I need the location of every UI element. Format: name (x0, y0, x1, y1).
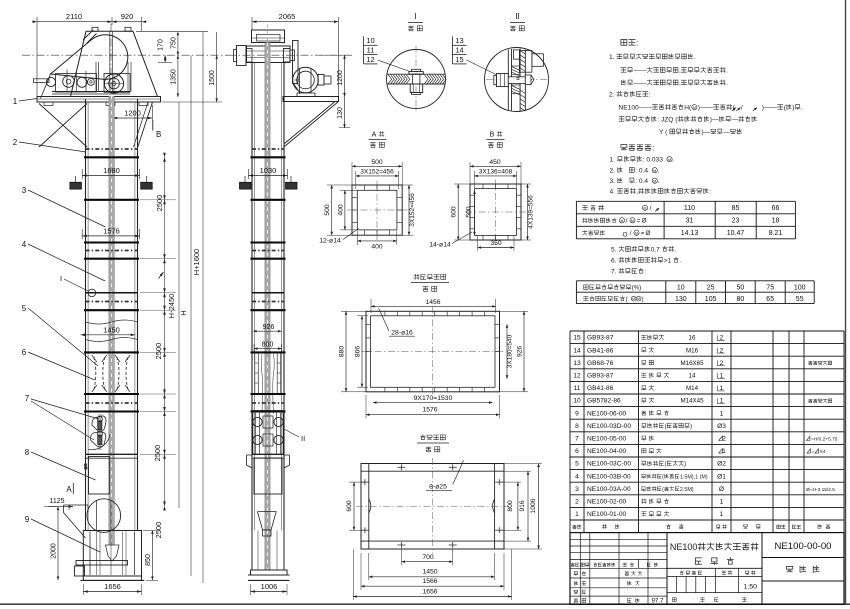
svg-text:8: 8 (25, 448, 30, 457)
svg-text:H(: H( (684, 105, 692, 112)
svg-text:>1: >1 (664, 258, 672, 265)
svg-text:1: 1 (720, 499, 724, 506)
svg-text:O: O (623, 231, 628, 238)
svg-text:2110: 2110 (66, 12, 82, 21)
svg-text:400: 400 (337, 204, 344, 216)
svg-text:NE100-05-00: NE100-05-00 (587, 436, 627, 443)
svg-text:3X152=456: 3X152=456 (409, 193, 416, 227)
svg-text:1576: 1576 (103, 227, 120, 236)
svg-text:8.21: 8.21 (769, 230, 783, 237)
svg-text:NE100——: NE100—— (619, 105, 653, 112)
svg-text:/: / (741, 105, 743, 112)
svg-text:1:50: 1:50 (744, 584, 757, 591)
svg-text:85: 85 (732, 205, 740, 212)
svg-text:.: . (726, 68, 728, 75)
svg-text:1200: 1200 (124, 109, 141, 118)
svg-text:1006: 1006 (530, 498, 537, 513)
svg-text:10: 10 (366, 36, 374, 45)
svg-text:9X170=1530: 9X170=1530 (414, 395, 453, 402)
svg-text:5: 5 (22, 304, 27, 313)
svg-text:A: A (66, 485, 72, 494)
svg-text:=: = (641, 231, 645, 237)
svg-text:GB68-76: GB68-76 (587, 360, 614, 367)
svg-text:3: 3 (22, 186, 27, 195)
svg-text:H+1600: H+1600 (192, 249, 201, 275)
svg-text:M: M (653, 169, 656, 173)
svg-text:Ø1: Ø1 (717, 473, 726, 480)
svg-text:—: — (732, 117, 739, 124)
svg-text:14: 14 (573, 347, 581, 354)
svg-text:11: 11 (574, 385, 581, 392)
svg-text:): ) (641, 296, 643, 303)
svg-text:X4: X4 (820, 449, 826, 455)
svg-text:(: ( (662, 487, 664, 493)
svg-text:130: 130 (337, 107, 344, 119)
svg-text:28-ø16: 28-ø16 (391, 330, 413, 337)
svg-text:M16: M16 (686, 347, 699, 354)
svg-text:170: 170 (158, 39, 165, 51)
svg-text:800: 800 (507, 500, 514, 512)
svg-text:25: 25 (707, 285, 715, 292)
svg-text:(%): (%) (632, 285, 642, 292)
svg-text:9: 9 (575, 410, 579, 417)
svg-text:450: 450 (489, 159, 501, 166)
svg-text:16: 16 (689, 335, 696, 342)
svg-text:.: . (694, 54, 696, 61)
svg-text:——: —— (633, 80, 647, 87)
svg-text:4X139=556: 4X139=556 (527, 195, 534, 229)
svg-text:——: —— (633, 68, 647, 75)
svg-text:2500: 2500 (155, 195, 164, 212)
svg-text:(: ( (665, 424, 667, 430)
svg-text:M: M (632, 297, 635, 301)
svg-text:—: — (723, 129, 730, 136)
svg-text:.: . (672, 157, 674, 164)
svg-text:GB41-86: GB41-86 (587, 385, 614, 392)
svg-text:M: M (631, 219, 634, 223)
svg-text:806: 806 (354, 346, 361, 358)
svg-text:1.: 1. (610, 157, 616, 164)
svg-text:M: M (668, 158, 671, 162)
svg-text:750: 750 (171, 37, 178, 49)
svg-text:2065: 2065 (279, 12, 296, 21)
svg-text:: JZQ (: : JZQ ( (657, 117, 678, 124)
svg-text:GB93-87: GB93-87 (587, 335, 614, 342)
svg-text:18: 18 (772, 218, 780, 225)
svg-text:0.7: 0.7 (651, 247, 660, 254)
svg-text:100: 100 (794, 285, 806, 292)
svg-text:1.5M),1 (M): 1.5M),1 (M) (680, 474, 708, 480)
svg-text:500: 500 (466, 206, 473, 218)
svg-text:): ) (792, 105, 794, 112)
svg-text:I: I (60, 274, 62, 283)
svg-text:)—: )— (701, 129, 710, 136)
svg-text:10.47: 10.47 (727, 230, 745, 237)
svg-text:14: 14 (455, 46, 463, 55)
svg-text:55: 55 (796, 296, 804, 303)
svg-text:75: 75 (766, 285, 774, 292)
svg-text:6: 6 (22, 348, 27, 357)
svg-text:1: 1 (720, 511, 724, 518)
svg-text:14.13: 14.13 (681, 230, 699, 237)
svg-text:=H/0.2+5.75: =H/0.2+5.75 (811, 437, 838, 443)
svg-text:2.5M): 2.5M) (680, 487, 694, 493)
svg-text:8-ø25: 8-ø25 (429, 484, 447, 491)
svg-text:920: 920 (121, 12, 134, 21)
svg-text:1456: 1456 (425, 299, 440, 306)
svg-text:600: 600 (346, 500, 353, 512)
svg-text:Ø2: Ø2 (717, 461, 726, 468)
svg-text:B: B (156, 130, 161, 139)
svg-text:2000: 2000 (51, 543, 58, 559)
svg-text:NE100-03A-00: NE100-03A-00 (587, 486, 631, 493)
svg-text:10: 10 (573, 398, 581, 405)
svg-text:,: , (636, 189, 638, 196)
svg-text:1: 1 (720, 410, 724, 417)
svg-text:(: ( (665, 462, 667, 468)
svg-text:): ) (690, 424, 692, 430)
svg-text:65: 65 (766, 296, 774, 303)
svg-text:M14X45: M14X45 (680, 398, 704, 405)
svg-text:NE100: NE100 (670, 542, 698, 552)
svg-text:23: 23 (732, 218, 740, 225)
svg-text:/: / (630, 230, 632, 237)
svg-text:4.: 4. (610, 189, 616, 196)
svg-text:926: 926 (263, 324, 275, 331)
svg-text:12-ø14: 12-ø14 (319, 238, 341, 245)
svg-text:.: . (657, 178, 659, 185)
svg-text:: 0.4: : 0.4 (635, 178, 648, 185)
svg-text:NE100-03C-00: NE100-03C-00 (587, 461, 631, 468)
svg-text:Ø=H-3.15/2.5: Ø=H-3.15/2.5 (806, 487, 835, 493)
svg-text:1656: 1656 (422, 589, 437, 596)
svg-text:880: 880 (338, 346, 345, 358)
svg-text:97.7: 97.7 (651, 598, 664, 605)
svg-text:Ø: Ø (646, 230, 651, 237)
svg-text:M: M (637, 297, 640, 301)
svg-text:=: = (637, 219, 641, 225)
svg-text:5: 5 (575, 461, 579, 468)
svg-text:3X152=456: 3X152=456 (360, 169, 394, 176)
svg-text:.: . (657, 168, 659, 175)
svg-text:H-2450: H-2450 (167, 294, 176, 319)
svg-text:1200: 1200 (337, 70, 344, 86)
svg-text:13: 13 (455, 36, 463, 45)
svg-text:2500: 2500 (154, 522, 163, 539)
svg-text:NE100-01-00: NE100-01-00 (587, 511, 627, 518)
svg-text:15: 15 (573, 335, 581, 342)
svg-text:H: H (179, 310, 188, 315)
svg-text::: : (709, 189, 711, 196)
svg-text:10: 10 (677, 285, 685, 292)
svg-text:)——: )—— (762, 105, 778, 112)
svg-text:1500: 1500 (209, 70, 216, 86)
svg-text:M: M (621, 219, 624, 223)
svg-text:31: 31 (686, 218, 694, 225)
svg-text:8: 8 (575, 423, 579, 430)
svg-text:80: 80 (736, 296, 744, 303)
svg-text:/: / (626, 218, 628, 225)
svg-text:): ) (684, 462, 686, 468)
svg-text:4: 4 (575, 473, 579, 480)
svg-text::: : (636, 39, 638, 48)
svg-text::: : (652, 144, 654, 153)
svg-text:1: 1 (575, 511, 579, 518)
svg-text:12: 12 (573, 373, 581, 380)
svg-text:14-ø14: 14-ø14 (429, 242, 451, 249)
svg-text:13: 13 (573, 360, 581, 367)
svg-text:2500: 2500 (153, 445, 162, 462)
svg-text:1350: 1350 (171, 69, 178, 85)
svg-text:M: M (653, 179, 656, 183)
svg-text:7: 7 (25, 394, 30, 403)
svg-text:3.: 3. (610, 178, 616, 185)
svg-text:6.: 6. (611, 258, 617, 265)
svg-text:GB5782-86: GB5782-86 (587, 398, 621, 405)
svg-text:130: 130 (675, 296, 687, 303)
svg-text:2: 2 (13, 138, 18, 147)
svg-text:105: 105 (705, 296, 717, 303)
svg-text:: 0.033: : 0.033 (643, 157, 663, 164)
svg-text:II: II (301, 434, 305, 443)
svg-text:A: A (372, 132, 377, 139)
svg-text:NE100-00-00: NE100-00-00 (774, 541, 831, 552)
svg-text:350: 350 (490, 240, 502, 247)
svg-text:50: 50 (736, 285, 744, 292)
svg-text:800: 800 (262, 341, 274, 348)
svg-text:NE100-02-00: NE100-02-00 (587, 499, 627, 506)
svg-text:3: 3 (575, 486, 579, 493)
svg-text:1450: 1450 (103, 326, 120, 335)
svg-text:6: 6 (575, 448, 579, 455)
svg-text:1: 1 (722, 448, 726, 455)
svg-text::: : (649, 92, 651, 99)
svg-text:/: / (650, 205, 652, 212)
svg-text:5.: 5. (611, 247, 617, 254)
svg-text:M: M (635, 231, 638, 235)
svg-text:1.: 1. (609, 54, 615, 61)
svg-text:15: 15 (455, 55, 463, 64)
svg-text:1006: 1006 (261, 582, 278, 591)
svg-text:NE100-03D-00: NE100-03D-00 (587, 423, 631, 430)
svg-text:1576: 1576 (422, 407, 437, 414)
svg-text:.: . (801, 105, 803, 112)
svg-text:M: M (693, 106, 696, 110)
svg-text:.: . (679, 258, 681, 265)
svg-text:)—: )— (710, 117, 719, 124)
svg-text:1030: 1030 (260, 166, 277, 175)
svg-text:M14: M14 (686, 385, 699, 392)
svg-text:1125: 1125 (49, 498, 64, 505)
svg-text:1: 1 (13, 97, 18, 106)
svg-text:1656: 1656 (104, 582, 121, 591)
svg-text:Ø: Ø (719, 486, 724, 493)
svg-text:1450: 1450 (422, 569, 437, 576)
svg-text:.: . (726, 80, 728, 87)
svg-text:3X180=540: 3X180=540 (507, 334, 514, 368)
svg-text:11: 11 (367, 46, 375, 55)
svg-text:Ø3: Ø3 (717, 423, 726, 430)
svg-text:NE100-03B-00: NE100-03B-00 (587, 473, 631, 480)
svg-text:2.: 2. (609, 92, 615, 99)
svg-text:926: 926 (516, 346, 523, 358)
svg-text::: : (644, 269, 646, 276)
svg-text:,: , (679, 80, 681, 87)
svg-text:=: = (812, 450, 815, 455)
svg-text:Ø: Ø (642, 218, 647, 225)
svg-text:9: 9 (25, 515, 30, 524)
svg-text:2: 2 (575, 499, 579, 506)
svg-text:,: , (679, 68, 681, 75)
svg-text:Y (: Y ( (659, 129, 668, 136)
svg-text:I: I (414, 12, 416, 21)
svg-text:: 0.4: : 0.4 (635, 168, 648, 175)
svg-text:400: 400 (371, 244, 383, 251)
svg-text:1566: 1566 (422, 578, 437, 585)
svg-text:M: M (644, 206, 647, 210)
svg-text:500: 500 (371, 159, 383, 166)
svg-text:110: 110 (684, 205, 695, 212)
svg-text:B: B (490, 132, 495, 139)
svg-text:NE100-06-00: NE100-06-00 (587, 410, 627, 417)
svg-text:M16X65: M16X65 (680, 360, 704, 367)
svg-text:2.: 2. (610, 168, 616, 175)
svg-text:NE100-04-00: NE100-04-00 (587, 448, 627, 455)
svg-text:2500: 2500 (154, 343, 163, 360)
svg-text:(: ( (662, 474, 664, 480)
svg-text:2: 2 (722, 436, 726, 443)
svg-text:850: 850 (145, 554, 152, 566)
svg-text:GB41-86: GB41-86 (587, 347, 614, 354)
svg-text:916: 916 (519, 500, 526, 512)
svg-text:700: 700 (422, 554, 434, 561)
svg-text:GB93-87: GB93-87 (587, 373, 614, 380)
svg-text:1680: 1680 (103, 166, 120, 175)
svg-text:)——: )—— (698, 105, 714, 112)
svg-text:4: 4 (22, 240, 27, 249)
svg-text:12: 12 (366, 55, 374, 64)
svg-text:600: 600 (451, 206, 458, 218)
svg-text:3X136=408: 3X136=408 (479, 169, 513, 176)
svg-text:II: II (515, 12, 519, 21)
svg-text:.: . (675, 247, 677, 254)
svg-text:7: 7 (575, 436, 579, 443)
svg-text:66: 66 (772, 205, 780, 212)
svg-text:7.: 7. (611, 269, 617, 276)
svg-text:14: 14 (689, 373, 696, 380)
svg-text:500: 500 (324, 204, 331, 216)
